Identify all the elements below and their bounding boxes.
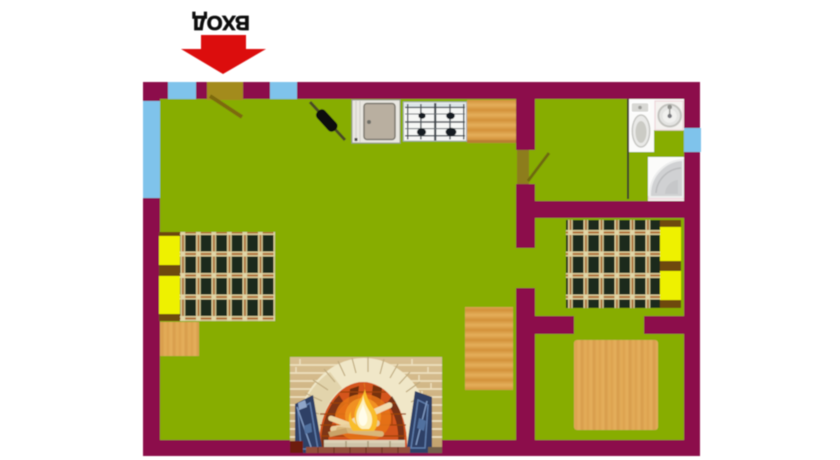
svg-text:ВХОД: ВХОД <box>192 11 250 34</box>
